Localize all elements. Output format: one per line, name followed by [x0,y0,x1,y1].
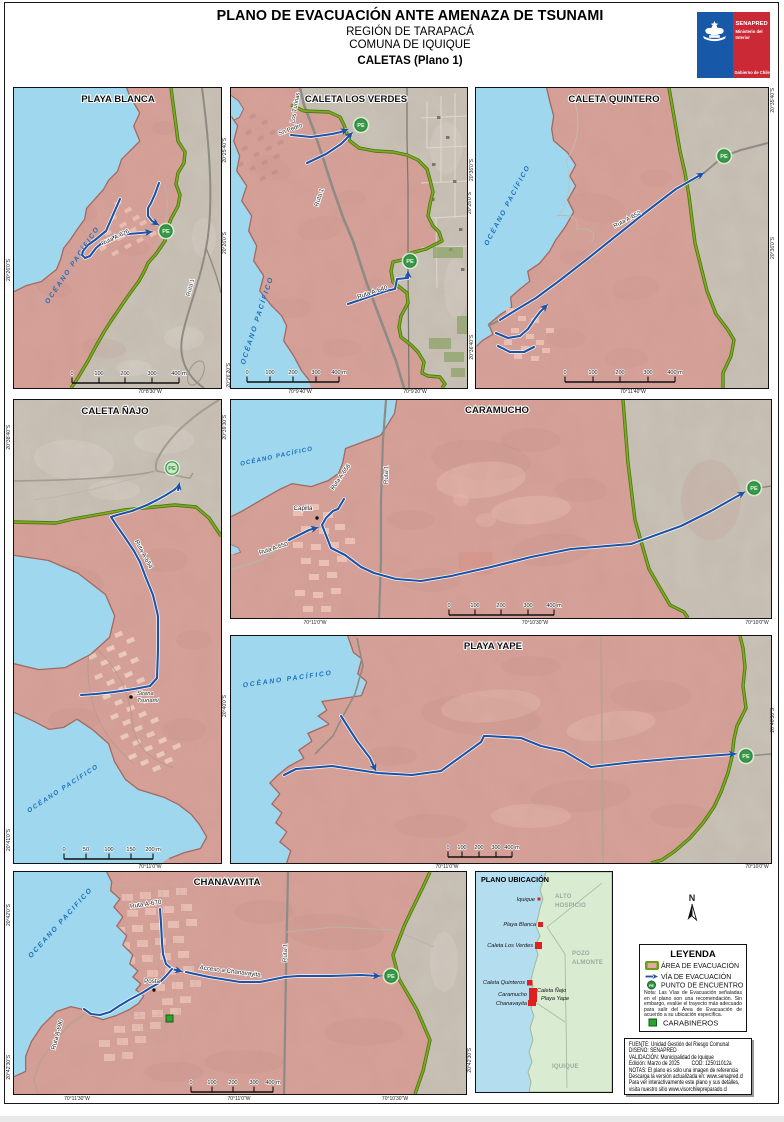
svg-text:Posta: Posta [144,978,160,985]
svg-text:CALETA QUINTERO: CALETA QUINTERO [568,94,660,105]
svg-text:PE: PE [357,123,365,129]
svg-text:Caleta Los Verdes: Caleta Los Verdes [487,943,533,949]
svg-text:VÍA DE EVACUACIÓN: VÍA DE EVACUACIÓN [661,972,731,981]
svg-text:PE: PE [720,154,728,160]
svg-text:HOSPICIO: HOSPICIO [555,903,586,909]
svg-text:0: 0 [446,845,449,851]
svg-text:100: 100 [470,603,479,609]
svg-text:Ruta 1: Ruta 1 [383,465,391,484]
svg-text:PLANO UBICACIÓN: PLANO UBICACIÓN [481,875,549,884]
svg-text:400 m: 400 m [331,370,347,376]
svg-text:Capilla: Capilla [294,505,313,512]
svg-text:ALTO: ALTO [555,894,572,900]
svg-text:SENAPRED: SENAPRED [736,21,768,27]
svg-text:POZO: POZO [572,951,590,957]
svg-text:200: 200 [615,370,624,376]
svg-text:Sirena: Sirena [137,691,155,697]
svg-text:400 m: 400 m [546,603,562,609]
svg-text:PUNTO DE ENCUENTRO: PUNTO DE ENCUENTRO [661,983,744,990]
svg-text:Iquique: Iquique [517,897,535,903]
svg-text:200: 200 [120,371,129,377]
svg-text:50: 50 [83,847,89,853]
svg-text:PE: PE [162,229,170,235]
svg-text:0: 0 [189,1080,192,1086]
svg-text:200: 200 [474,845,483,851]
svg-text:PE: PE [387,974,395,980]
svg-text:Caramucho: Caramucho [498,992,527,998]
svg-text:100: 100 [207,1080,216,1086]
svg-text:Chanavayita: Chanavayita [496,1001,527,1007]
svg-text:100: 100 [457,845,466,851]
svg-text:300: 300 [147,371,156,377]
svg-text:Tsunami: Tsunami [137,698,159,704]
svg-text:0: 0 [447,603,450,609]
svg-text:Caleta Quinteros: Caleta Quinteros [483,980,525,986]
svg-text:400 m: 400 m [171,371,187,377]
svg-text:200 m: 200 m [145,847,161,853]
svg-text:100: 100 [94,371,103,377]
svg-text:Gobierno de Chile: Gobierno de Chile [735,70,771,75]
svg-text:100: 100 [104,847,113,853]
svg-text:CARAMUCHO: CARAMUCHO [465,405,529,416]
svg-text:ÁREA DE EVACUACIÓN: ÁREA DE EVACUACIÓN [661,961,739,970]
svg-text:0: 0 [70,371,73,377]
svg-text:CARABINEROS: CARABINEROS [663,1019,718,1028]
svg-text:PE: PE [406,259,414,265]
svg-text:200: 200 [496,603,505,609]
svg-text:Interior: Interior [736,35,751,40]
svg-text:0: 0 [62,847,65,853]
svg-text:PE: PE [742,754,750,760]
svg-text:300: 300 [491,845,500,851]
svg-text:PE: PE [750,486,758,492]
svg-text:400 m: 400 m [667,370,683,376]
svg-text:300: 300 [249,1080,258,1086]
svg-text:PE: PE [168,466,176,472]
svg-text:Ministerio del: Ministerio del [736,29,763,34]
svg-text:PE: PE [649,984,654,988]
svg-text:CALETA ÑAJO: CALETA ÑAJO [81,406,149,417]
svg-text:150: 150 [126,847,135,853]
svg-text:100: 100 [265,370,274,376]
svg-text:Playa Yape: Playa Yape [541,996,569,1002]
svg-text:CALETA LOS VERDES: CALETA LOS VERDES [305,94,408,105]
svg-text:IQUIQUE: IQUIQUE [552,1064,579,1070]
svg-text:300: 300 [523,603,532,609]
svg-text:PLAYA BLANCA: PLAYA BLANCA [81,94,155,105]
svg-text:200: 200 [288,370,297,376]
svg-text:0: 0 [245,370,248,376]
svg-text:Ruta 1: Ruta 1 [282,943,290,962]
svg-text:0: 0 [563,370,566,376]
svg-text:400 m: 400 m [504,845,520,851]
svg-text:300: 300 [643,370,652,376]
svg-text:PLAYA YAPE: PLAYA YAPE [464,641,523,652]
svg-text:200: 200 [228,1080,237,1086]
svg-text:300: 300 [311,370,320,376]
svg-text:100: 100 [588,370,597,376]
svg-text:400 m: 400 m [265,1080,281,1086]
svg-text:Playa Blanca: Playa Blanca [503,922,536,928]
svg-text:Caleta Ñajo: Caleta Ñajo [537,987,566,994]
svg-text:CHANAVAYITA: CHANAVAYITA [194,877,261,888]
svg-text:ALMONTE: ALMONTE [572,960,603,966]
svg-text:N: N [689,893,696,903]
